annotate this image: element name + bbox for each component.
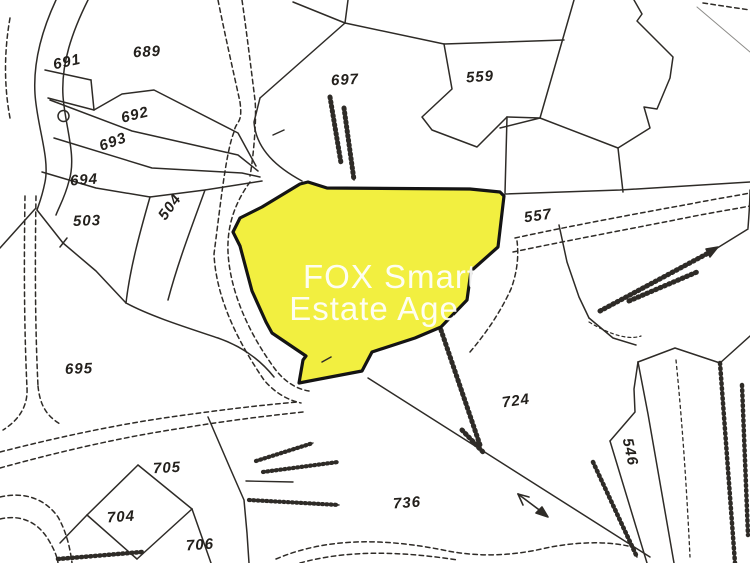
parcel-label-736: 736 [392, 494, 421, 513]
watermark-line2: Estate Age [289, 290, 459, 328]
parcel-boundaries-724 [368, 330, 650, 557]
well-icon [58, 111, 69, 122]
parcel-boundaries-north [254, 0, 564, 193]
parcel-label-689: 689 [133, 43, 162, 61]
parcel-label-559: 559 [465, 68, 494, 87]
hedge-hatch-697 [330, 97, 354, 180]
field-hatch-lines [246, 443, 339, 505]
parcel-boundaries-southeast [589, 322, 750, 563]
parcel-label-503: 503 [73, 212, 102, 230]
parcel-label-695: 695 [65, 360, 94, 378]
flow-arrow-icon [518, 494, 548, 517]
parcel-boundaries-east [559, 190, 750, 345]
parcel-label-705: 705 [153, 459, 182, 477]
parcel-boundaries-northeast [500, 0, 750, 194]
parcel-label-697: 697 [331, 71, 360, 89]
parcel-label-694: 694 [69, 171, 98, 190]
cadastral-map-image[interactable]: 691 689 692 693 694 503 504 697 559 557 … [0, 0, 750, 563]
parcel-boundaries-southwest [58, 417, 249, 563]
parcel-label-704: 704 [106, 508, 135, 527]
parcel-label-706: 706 [185, 536, 214, 555]
